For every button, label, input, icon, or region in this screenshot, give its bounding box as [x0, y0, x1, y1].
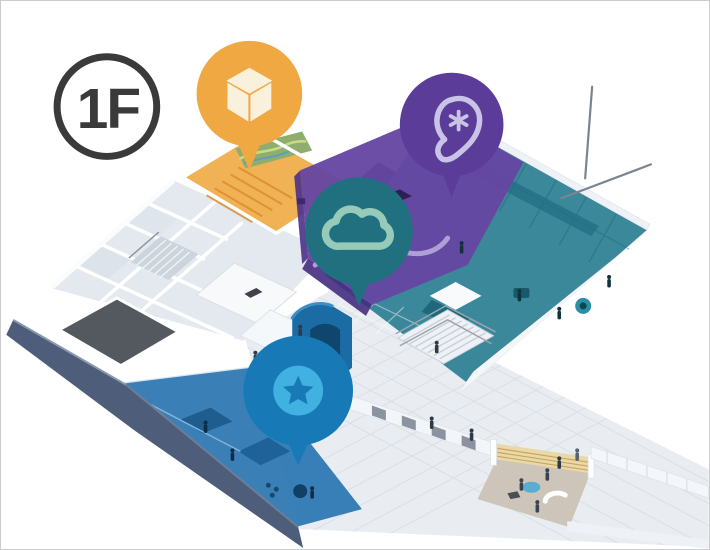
floor-badge-label: 1F — [77, 78, 140, 141]
floor-map-illustration: 1F — [1, 1, 709, 549]
roof-antennas — [561, 87, 651, 199]
floor-map-1f: 1F — [0, 0, 710, 550]
purple-prop — [297, 198, 305, 204]
lounge-exhibit-pool — [522, 482, 540, 493]
floor-badge: 1F — [57, 57, 157, 157]
lounge-pillar — [491, 439, 497, 465]
